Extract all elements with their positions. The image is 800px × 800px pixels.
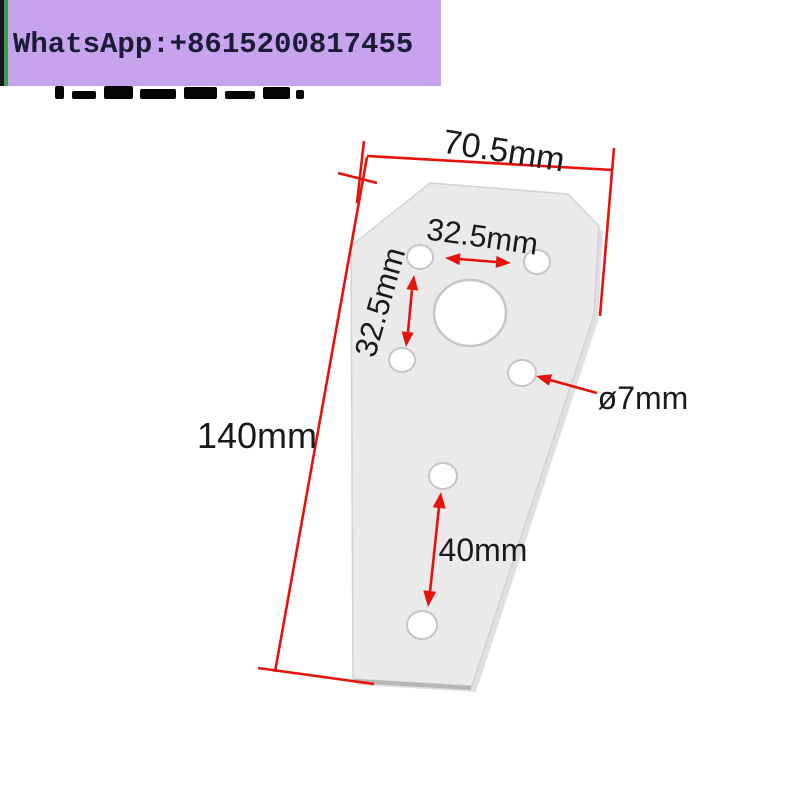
glyph-fragment [55, 86, 64, 99]
glyph-fragment [72, 91, 96, 99]
dim-label-top-width: 70.5mm [440, 123, 567, 180]
product-image: WhatsApp:+8615200817455 [0, 0, 800, 800]
dim-label-hole-diameter: ø7mm [598, 380, 689, 416]
plate-hole-mid-right [508, 360, 536, 386]
dimension-diagram: 70.5mm 32.5mm 32.5mm 140mm 40mm ø7mm [0, 0, 800, 800]
plate-hole-bottom [407, 611, 437, 639]
whatsapp-contact-text: WhatsApp:+8615200817455 [13, 28, 413, 61]
plate-hole-center-large [434, 280, 506, 346]
banner-green-stripe [4, 0, 8, 86]
dim-label-lower-hole-spacing: 40mm [439, 532, 528, 568]
plate-hole-mid-left [389, 348, 415, 372]
ext-tick-height-top [338, 173, 377, 183]
glyph-fragment [225, 91, 255, 99]
whatsapp-banner: WhatsApp:+8615200817455 [0, 0, 441, 86]
dim-label-total-height: 140mm [197, 415, 317, 456]
glyph-fragment [263, 87, 290, 99]
glyph-fragment [184, 87, 217, 99]
plate-hole-lower-mid [429, 463, 457, 489]
glyph-fragment [296, 90, 304, 99]
glyph-fragment [104, 86, 133, 99]
glyph-fragment [140, 89, 176, 99]
